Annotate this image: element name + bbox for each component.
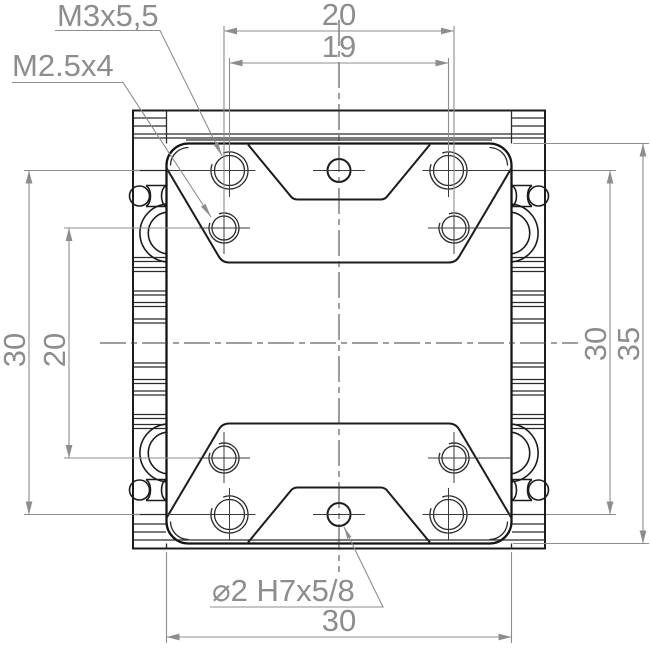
dim-left-inner-value: 20 (37, 333, 72, 367)
arrow-right-icon (499, 634, 512, 641)
arrow-right-icon (436, 60, 449, 67)
arrow-up-icon (640, 144, 647, 157)
callout-m25-leader (12, 83, 211, 218)
dim-top-inner-value: 19 (322, 29, 356, 64)
callout-m3-label: M3x5,5 (57, 0, 159, 33)
arrow-left-icon (224, 28, 237, 35)
callout-bore: ⌀2 H7x5/8 (210, 527, 383, 608)
arrow-down-icon (66, 445, 73, 458)
arrow-up-icon (607, 171, 614, 184)
arrow-down-icon (640, 531, 647, 544)
dim-right-outer-value: 35 (611, 327, 646, 361)
arrow-down-icon (26, 502, 33, 515)
arrow-right-icon (441, 28, 454, 35)
ball-bearing-bottom-right (511, 424, 549, 500)
rail-right-lines (512, 118, 544, 532)
arrow-up-icon (26, 171, 33, 184)
ball-bearing-top-right (511, 186, 549, 262)
arrow-down-icon (607, 502, 614, 515)
rail-left-lines (134, 118, 166, 532)
dim-right-inner-value: 30 (578, 327, 613, 361)
callout-m25-label: M2.5x4 (12, 48, 114, 83)
dim-bottom-value: 30 (322, 603, 356, 638)
arrow-left-icon (167, 634, 180, 641)
dim-top-outer-value: 20 (322, 0, 356, 32)
leader-arrow-icon (201, 204, 211, 217)
technical-drawing: 20 19 30 20 30 35 30 M3x5,5 (0, 0, 650, 650)
rail-left (134, 118, 166, 532)
dim-left-outer-value: 30 (0, 333, 32, 367)
ball-bearing-bottom-left (130, 424, 168, 500)
arrow-left-icon (230, 60, 243, 67)
drawing-canvas: 20 19 30 20 30 35 30 M3x5,5 (0, 0, 650, 650)
leader-arrow-icon (344, 527, 351, 539)
arrow-up-icon (66, 228, 73, 241)
ball-bearing-top-left (130, 186, 168, 262)
rail-right (512, 118, 544, 532)
centerlines (100, 20, 578, 572)
callout-bore-label: ⌀2 H7x5/8 (212, 573, 355, 608)
